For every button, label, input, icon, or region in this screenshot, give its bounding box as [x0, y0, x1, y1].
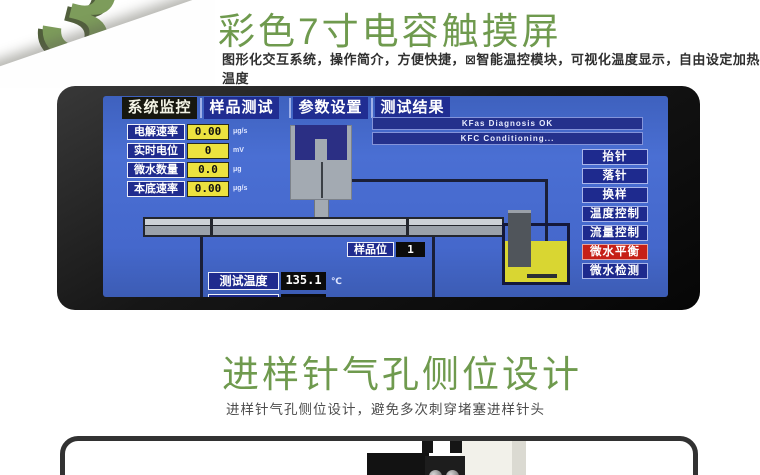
tab-separator: [200, 98, 202, 118]
oven-cavity-graphic: [295, 138, 315, 160]
photo-frame: [60, 436, 698, 475]
readout-value-electrolysis-rate: 0.00: [187, 124, 229, 140]
rail-surface: [145, 219, 502, 225]
electrode-graphic: [508, 210, 531, 267]
button-change-sample[interactable]: 换样: [582, 187, 648, 203]
readout-unit: μg/s: [233, 185, 247, 192]
touchscreen-display: 系统监控 样品测试 参数设置 测试结果 KFas Diagnosis OK KF…: [103, 96, 668, 297]
sample-position-label: 样品位: [347, 242, 394, 257]
test-temperature-unit: ℃: [331, 276, 342, 287]
readout-value-moisture-amount: 0.0: [187, 162, 229, 178]
tab-system-monitor[interactable]: 系统监控: [122, 97, 197, 119]
stir-bar-graphic: [527, 274, 557, 278]
test-temperature-value: 135.1: [281, 272, 326, 290]
oven-stem-graphic: [314, 200, 329, 218]
button-raise-needle[interactable]: 抬针: [582, 149, 648, 165]
button-temperature-control[interactable]: 温度控制: [582, 206, 648, 222]
readout-label-electrolysis-rate: 电解速率: [127, 124, 185, 140]
gas-tube-graphic: [352, 179, 548, 182]
status-message-diagnosis: KFas Diagnosis OK: [372, 117, 643, 130]
clipped-row-value: [281, 294, 326, 297]
device-fitting-photo: [450, 440, 462, 453]
button-flow-control[interactable]: 流量控制: [582, 225, 648, 241]
rail-joint: [210, 217, 213, 237]
section-title-needle-design: 进样针气孔侧位设计: [222, 344, 582, 398]
device-column-photo: [460, 441, 518, 475]
clipped-row-label: [208, 294, 279, 297]
readout-unit: μg/s: [233, 128, 247, 135]
test-temperature-label: 测试温度: [208, 272, 279, 290]
connector-photo: [446, 470, 459, 475]
device-module-photo: [367, 453, 429, 475]
tab-separator: [371, 98, 373, 118]
sample-rail-graphic: [143, 217, 504, 237]
button-lower-needle[interactable]: 落针: [582, 168, 648, 184]
product-page: 3 彩色7寸电容触摸屏 图形化交互系统，操作简介，方便快捷，⊠智能温控模块，可视…: [0, 0, 760, 475]
status-message-conditioning: KFC Conditioning...: [372, 132, 643, 145]
button-moisture-detect[interactable]: 微水检测: [582, 263, 648, 279]
button-moisture-balance[interactable]: 微水平衡: [582, 244, 648, 260]
rail-joint: [406, 217, 409, 237]
sampling-needle-graphic: [321, 162, 323, 198]
tab-test-results[interactable]: 测试结果: [375, 97, 450, 119]
rail-support-graphic: [432, 237, 435, 297]
connector-photo: [429, 470, 442, 475]
section-title-touchscreen: 彩色7寸电容触摸屏: [218, 1, 562, 55]
readout-label-realtime-potential: 实时电位: [127, 143, 185, 159]
rail-body: [145, 226, 502, 235]
section-subtitle-touchscreen: 图形化交互系统，操作简介，方便快捷，⊠智能温控模块，可视化温度显示，自由设定加热…: [222, 49, 760, 87]
sample-position-value: 1: [396, 242, 425, 257]
oven-cavity-graphic: [327, 138, 347, 160]
readout-label-background-rate: 本底速率: [127, 181, 185, 197]
oven-cavity-graphic: [295, 125, 347, 139]
device-connector-panel-photo: [425, 456, 465, 475]
readout-value-realtime-potential: 0: [187, 143, 229, 159]
readout-label-moisture-amount: 微水数量: [127, 162, 185, 178]
tab-parameter-settings[interactable]: 参数设置: [293, 97, 368, 119]
rail-support-graphic: [200, 237, 203, 297]
section-number-badge: 3: [0, 0, 215, 88]
device-column-shadow: [512, 441, 526, 475]
device-fitting-photo: [422, 440, 433, 453]
section-subtitle-needle-design: 进样针气孔侧位设计，避免多次刺穿堵塞进样针头: [226, 398, 545, 418]
tab-separator: [289, 98, 291, 118]
tab-sample-test[interactable]: 样品测试: [204, 97, 279, 119]
readout-unit: μg: [233, 166, 242, 173]
readout-value-background-rate: 0.00: [187, 181, 229, 197]
readout-unit: mV: [233, 147, 244, 154]
